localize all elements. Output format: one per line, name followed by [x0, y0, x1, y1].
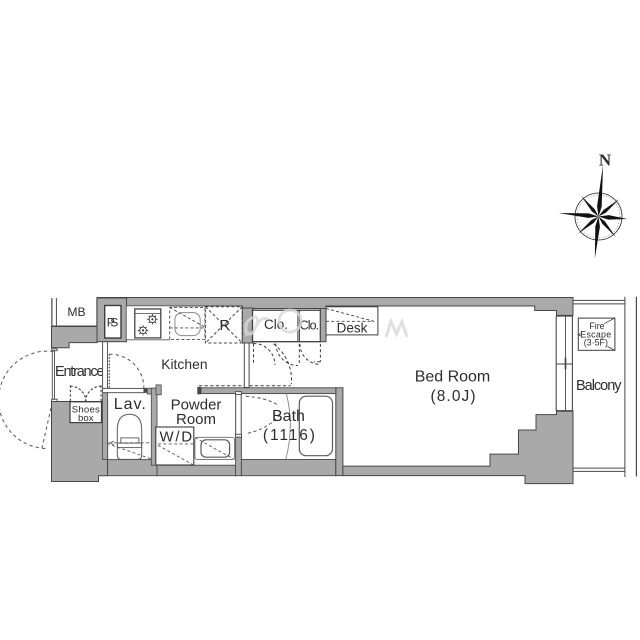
svg-text:W/D: W/D: [160, 428, 193, 445]
svg-text:MB: MB: [67, 305, 85, 319]
svg-text:(1116): (1116): [263, 427, 315, 444]
svg-text:Clo.: Clo.: [300, 319, 320, 333]
svg-text:Kitchen: Kitchen: [161, 357, 207, 372]
svg-text:box: box: [78, 413, 94, 424]
svg-text:PS: PS: [107, 316, 119, 330]
svg-text:R: R: [220, 318, 230, 334]
svg-text:Lav.: Lav.: [114, 396, 146, 413]
svg-text:Entrance: Entrance: [55, 364, 105, 380]
svg-text:Balcony: Balcony: [576, 378, 622, 394]
svg-text:Desk: Desk: [337, 320, 368, 335]
svg-text:Bath: Bath: [272, 408, 305, 425]
svg-text:(3·5F): (3·5F): [584, 338, 608, 348]
svg-text:Room: Room: [176, 411, 216, 428]
svg-text:(8.0J): (8.0J): [431, 388, 476, 405]
svg-text:Bed Room: Bed Room: [415, 369, 491, 386]
svg-text:N: N: [599, 151, 612, 170]
